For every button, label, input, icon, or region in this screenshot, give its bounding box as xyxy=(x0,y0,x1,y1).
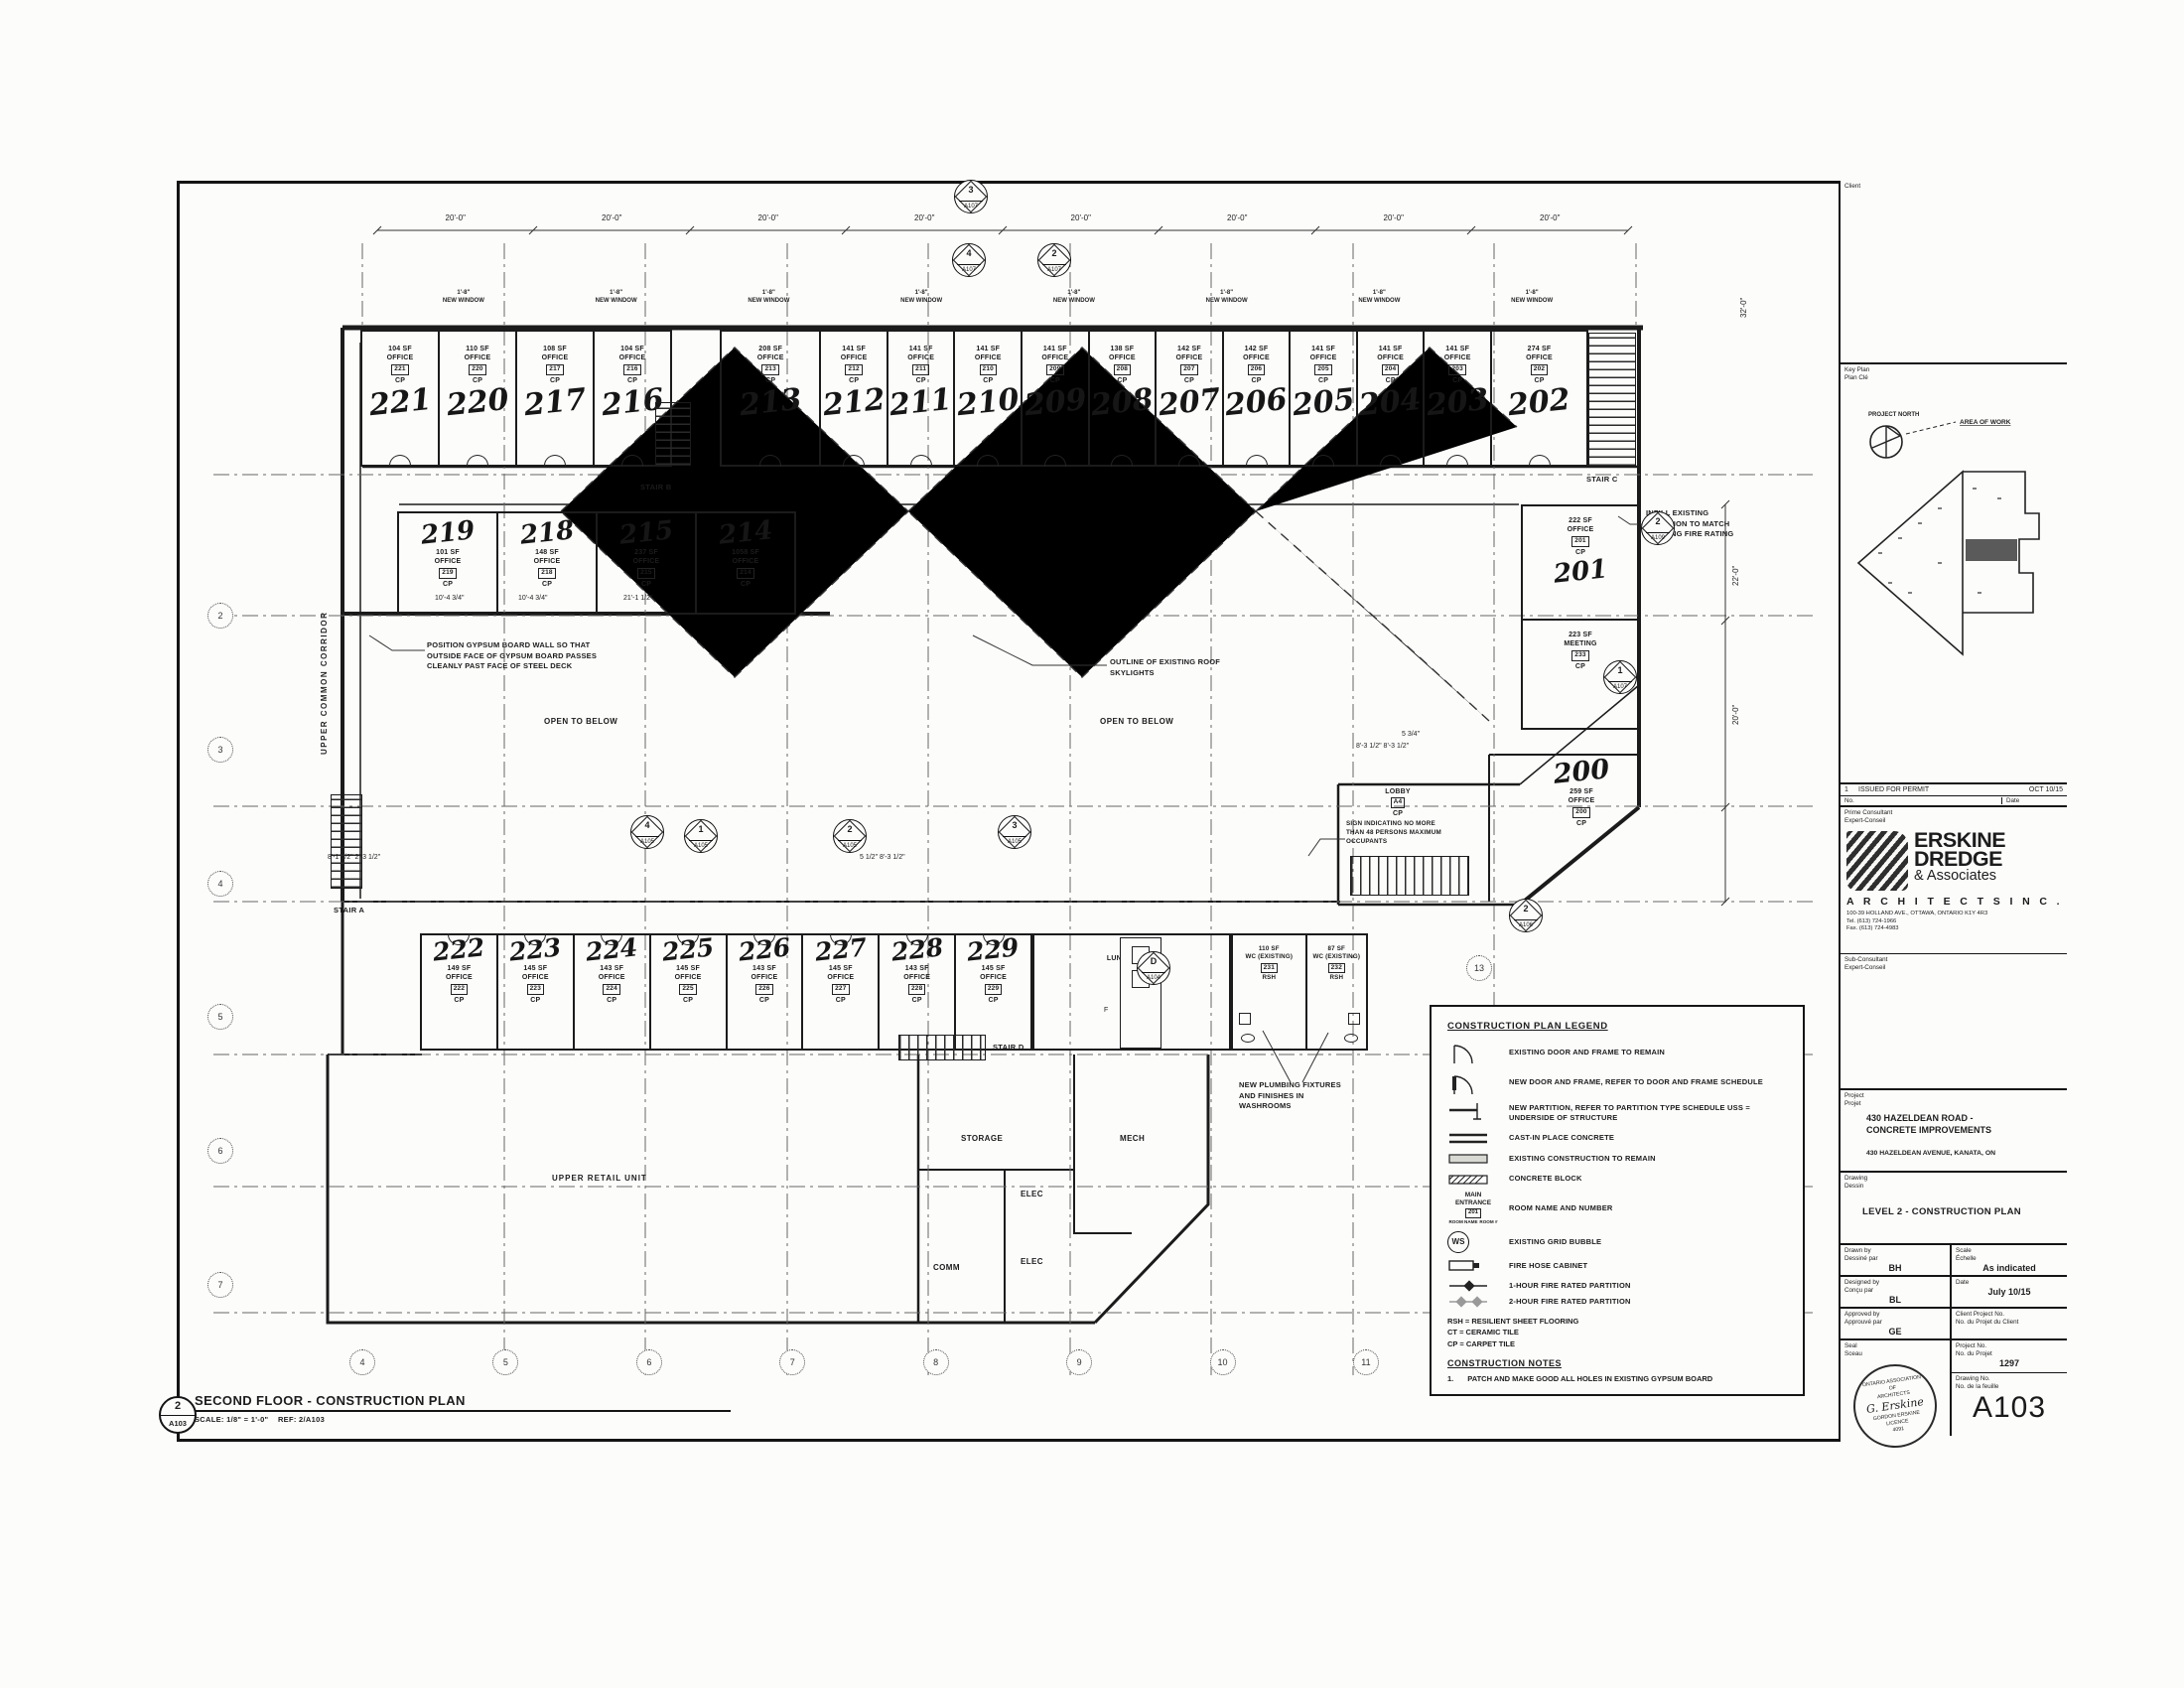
plumbing-note: NEW PLUMBING FIXTURES AND FINISHES IN WA… xyxy=(1239,1080,1356,1112)
office-room: 228 143 SF OFFICE 228 CP xyxy=(878,933,956,1051)
room-area: 108 SF xyxy=(542,345,569,353)
drawing-title-box: Drawing Dessin LEVEL 2 - CONSTRUCTION PL… xyxy=(1841,1173,2067,1245)
occupancy-sign-note: SIGN INDICATING NO MORE THAN 48 PERSONS … xyxy=(1346,820,1453,846)
room-tag: 220 xyxy=(469,364,485,375)
room-tag: A4 xyxy=(1391,797,1406,808)
room-number-handwritten: 202 xyxy=(1507,382,1572,423)
right-wing-rooms: 222 SF OFFICE 201 CP 201 223 SF MEETING … xyxy=(1521,504,1640,732)
room-finish: CP xyxy=(633,580,660,589)
room-stack: 237 SF OFFICE 215 CP xyxy=(633,548,660,589)
room-area: 141 SF xyxy=(907,345,934,353)
legend-item: 1-HOUR FIRE RATED PARTITION xyxy=(1447,1280,1789,1292)
room-stack: 145 SF OFFICE 225 CP xyxy=(675,964,702,1005)
room-type: OFFICE xyxy=(732,557,759,566)
drawing-no-box: Drawing No.No. de la feuille A103 xyxy=(1952,1373,2067,1436)
room-number-handwritten: 204 xyxy=(1358,382,1424,423)
room-stack: 101 SF OFFICE 219 CP xyxy=(435,548,462,589)
room-tag: 214 xyxy=(737,568,753,579)
door-arc-icon xyxy=(1312,455,1334,467)
room-area: 148 SF xyxy=(534,548,561,557)
upper-retail-label: UPPER RETAIL UNIT xyxy=(552,1174,647,1183)
room-stack: 110 SF OFFICE 220 CP xyxy=(465,345,491,385)
room-stack: 141 SF OFFICE 211 CP xyxy=(907,345,934,385)
dim-label: 5 1/2" 8'-3 1/2" xyxy=(860,854,905,861)
grid-bubble: 6 xyxy=(636,1349,662,1375)
room-number-handwritten: 201 xyxy=(1552,554,1608,590)
office-room: 224 143 SF OFFICE 224 CP xyxy=(573,933,651,1051)
room-area: 222 SF xyxy=(1568,516,1594,525)
room-tag: 212 xyxy=(845,364,862,375)
room-area: 145 SF xyxy=(522,964,549,973)
firm-logo: ERSKINE DREDGE & Associates xyxy=(1841,825,2067,893)
legend-item: NEW DOOR AND FRAME, REFER TO DOOR AND FR… xyxy=(1447,1070,1789,1096)
new-window-label: 1'-8"NEW WINDOW xyxy=(1151,290,1303,306)
stair-a-label: STAIR A xyxy=(334,906,364,914)
room-tag: 202 xyxy=(1531,364,1548,375)
revision-row: 1 ISSUED FOR PERMIT OCT 10/15 xyxy=(1841,784,2067,796)
dimension-label: 20'-0" xyxy=(377,213,534,222)
plumbing-fixture-icon xyxy=(1241,1034,1255,1043)
plan-title-marker: 2 A103 xyxy=(159,1396,197,1434)
prime-consultant-box: Prime Consultant Expert-Conseil ERSKINE … xyxy=(1841,807,2067,954)
room-number-handwritten: 203 xyxy=(1425,382,1490,423)
approved-by-value: GE xyxy=(1841,1327,1950,1336)
storage-label: STORAGE xyxy=(961,1134,1003,1143)
room-tag: 225 xyxy=(679,984,696,995)
room-finish: CP xyxy=(903,996,930,1005)
office-room: 226 143 SF OFFICE 226 CP xyxy=(726,933,804,1051)
room-type: OFFICE xyxy=(1310,353,1337,362)
stair-d xyxy=(898,1035,986,1060)
dimension-label: 20'-0" xyxy=(1160,213,1316,222)
room-number-handwritten: 217 xyxy=(522,382,588,423)
room-name-number-icon: MAIN ENTRANCE 201 ROOM NAME ROOM # xyxy=(1447,1192,1499,1226)
room-tag: 213 xyxy=(761,364,778,375)
grid-bubble: 11 xyxy=(1353,1349,1379,1375)
legend-item: NEW PARTITION, REFER TO PARTITION TYPE S… xyxy=(1447,1100,1789,1126)
detail-marker: 2A107 xyxy=(1037,243,1071,277)
stair-c xyxy=(1588,333,1636,467)
door-arc-icon xyxy=(1380,455,1402,467)
door-arc-icon xyxy=(1178,455,1200,467)
room-area: 101 SF xyxy=(435,548,462,557)
fire-hose-cabinet-icon xyxy=(1447,1257,1499,1275)
dimension-label: 20'-0" xyxy=(1472,213,1629,222)
room-finish: CP xyxy=(534,580,561,589)
door-arc-icon xyxy=(843,455,865,467)
dim-label: 22'-0" xyxy=(1731,566,1740,586)
dim-label: 8'-3 1/2" 8'-3 1/2" xyxy=(1356,743,1409,750)
room-number-handwritten: 211 xyxy=(888,382,954,423)
room-area: 145 SF xyxy=(675,964,702,973)
wc-room: 87 SF WC (EXISTING) 232 RSH xyxy=(1305,933,1368,1051)
room-stack: 142 SF OFFICE 206 CP xyxy=(1243,345,1270,385)
room-stack: 141 SF OFFICE 210 CP xyxy=(975,345,1002,385)
room-tag: 209 xyxy=(1046,364,1063,375)
two-hour-partition-icon xyxy=(1447,1296,1499,1308)
dim-label: 32'-0" xyxy=(1739,298,1748,318)
room-type: OFFICE xyxy=(1568,525,1594,534)
room-tag: 211 xyxy=(912,364,929,375)
room-name: WC (EXISTING) xyxy=(1245,953,1293,961)
office-room: 208 SF OFFICE 213 CP 213 xyxy=(720,330,821,467)
door-arc-icon xyxy=(977,455,999,467)
room-area: 143 SF xyxy=(903,964,930,973)
detail-marker: 4A105 xyxy=(630,815,664,849)
dim-label: 20'-0" xyxy=(1731,705,1740,725)
room-finish: CP xyxy=(1564,662,1596,671)
room-stack: 143 SF OFFICE 224 CP xyxy=(599,964,625,1005)
room-area: 143 SF xyxy=(751,964,778,973)
room-type: OFFICE xyxy=(1243,353,1270,362)
new-window-label: 1'-8"NEW WINDOW xyxy=(845,290,998,306)
room-number-handwritten: 210 xyxy=(955,382,1021,423)
room-finish: RSH xyxy=(1312,974,1360,982)
detail-marker: 1A105 xyxy=(684,819,718,853)
room-finish: CP xyxy=(1358,809,1437,818)
detail-marker: 1A107 xyxy=(1603,660,1637,694)
room-area: 141 SF xyxy=(1041,345,1068,353)
scale-value: As indicated xyxy=(1952,1263,2067,1273)
revision-header: No. Date xyxy=(1841,796,2067,807)
firm-name: A R C H I T E C T S I N C . xyxy=(1841,893,2067,910)
room-area: 104 SF xyxy=(619,345,646,353)
construction-note: 1. PATCH AND MAKE GOOD ALL HOLES IN EXIS… xyxy=(1447,1374,1789,1383)
room-number-handwritten: 207 xyxy=(1157,382,1222,423)
room-stack: 145 SF OFFICE 227 CP xyxy=(827,964,854,1005)
room-area: 141 SF xyxy=(1377,345,1404,353)
grid-bubble: 4 xyxy=(349,1349,375,1375)
room-stack: 141 SF OFFICE 212 CP xyxy=(841,345,868,385)
room-finish: CP xyxy=(599,996,625,1005)
grid-bubble: 7 xyxy=(779,1349,805,1375)
new-window-label: 1'-8"NEW WINDOW xyxy=(998,290,1151,306)
office-room: 104 SF OFFICE 221 CP 221 xyxy=(360,330,440,467)
room-number-handwritten: 214 xyxy=(717,515,773,551)
room-type: OFFICE xyxy=(435,557,462,566)
elec-label: ELEC xyxy=(1021,1257,1043,1266)
room-stack: 141 SF OFFICE 203 CP xyxy=(1444,345,1471,385)
office-room: 274 SF OFFICE 202 CP 202 xyxy=(1490,330,1588,467)
plumbing-fixture-icon xyxy=(1239,1013,1251,1025)
new-window-label: 1'-8"NEW WINDOW xyxy=(1303,290,1456,306)
corridor-label: UPPER COMMON CORRIDOR xyxy=(320,596,329,755)
legend-item: FIRE HOSE CABINET xyxy=(1447,1257,1789,1275)
room-finish: CP xyxy=(1527,819,1636,828)
room-finish: RSH xyxy=(1245,974,1293,982)
room-stack: 141 SF OFFICE 205 CP xyxy=(1310,345,1337,385)
room-name: WC (EXISTING) xyxy=(1312,953,1360,961)
room-tag: 223 xyxy=(527,984,544,995)
room-area: 145 SF xyxy=(827,964,854,973)
room-tag: 221 xyxy=(391,364,408,375)
legend-item: CAST-IN PLACE CONCRETE xyxy=(1447,1131,1789,1147)
room-number-handwritten: 213 xyxy=(738,382,803,423)
approved-clientno-row: Approved byApprouvé par GE Client Projec… xyxy=(1841,1309,2067,1340)
legend-item: EXISTING CONSTRUCTION TO REMAIN xyxy=(1447,1151,1789,1167)
grid-bubble: 13 xyxy=(1466,955,1492,981)
comm-label: COMM xyxy=(933,1263,960,1272)
door-arc-icon xyxy=(1246,455,1268,467)
lobby-stair xyxy=(1350,856,1469,896)
detail-marker: 2A105 xyxy=(833,819,867,853)
room-tag: 218 xyxy=(538,568,555,579)
grid-bubble: 5 xyxy=(492,1349,518,1375)
office-201: 222 SF OFFICE 201 CP 201 xyxy=(1521,504,1640,621)
room-tag: 229 xyxy=(985,984,1002,995)
new-door-icon xyxy=(1447,1070,1499,1096)
room-type: OFFICE xyxy=(827,973,854,982)
door-arc-icon xyxy=(1446,455,1468,467)
new-window-label: 1'-8"NEW WINDOW xyxy=(693,290,846,306)
room-number-handwritten: 206 xyxy=(1224,382,1290,423)
new-partition-icon xyxy=(1447,1100,1499,1126)
room-type: OFFICE xyxy=(387,353,414,362)
room-tag: 233 xyxy=(1571,650,1588,661)
window-label-row: 1'-8"NEW WINDOW1'-8"NEW WINDOW1'-8"NEW W… xyxy=(387,290,1608,306)
plan-title: SECOND FLOOR - CONSTRUCTION PLAN xyxy=(195,1393,731,1412)
office-room: 222 149 SF OFFICE 222 CP xyxy=(420,933,498,1051)
dimension-label: 20'-0" xyxy=(534,213,691,222)
room-type: OFFICE xyxy=(1176,353,1203,362)
bottom-office-row: 222 149 SF OFFICE 222 CP 223 145 SF OFFI… xyxy=(422,933,1032,1051)
room-number-handwritten: 212 xyxy=(821,382,887,423)
designed-date-row: Designed byConçu par BL Date July 10/15 xyxy=(1841,1277,2067,1309)
office-room: 141 SF OFFICE 209 CP 209 xyxy=(1021,330,1090,467)
detail-marker: 2A109 xyxy=(1641,511,1675,545)
door-arc-icon xyxy=(910,455,932,467)
room-type: OFFICE xyxy=(1527,796,1636,805)
construction-notes-title: CONSTRUCTION NOTES xyxy=(1447,1358,1789,1368)
room-type: OFFICE xyxy=(903,973,930,982)
room-area: 141 SF xyxy=(1444,345,1471,353)
room-tag: 219 xyxy=(439,568,456,579)
oaa-stamp: ONTARIO ASSOCIATION OF ARCHITECTS G. Ers… xyxy=(1848,1358,1943,1453)
drawing-title: LEVEL 2 - CONSTRUCTION PLAN xyxy=(1841,1191,2067,1235)
shaft-label: F xyxy=(1104,1007,1108,1014)
room-area: 110 SF xyxy=(1245,945,1293,953)
room-area: 141 SF xyxy=(841,345,868,353)
room-number-handwritten: 209 xyxy=(1023,382,1088,423)
door-arc-icon xyxy=(759,455,781,467)
elec-label: ELEC xyxy=(1021,1190,1043,1198)
drawn-scale-row: Drawn byDessiné par BH ScaleÉchelle As i… xyxy=(1841,1245,2067,1277)
grid-bubble: 7 xyxy=(207,1272,233,1298)
sub-consultant-box: Sub-Consultant Expert-Conseil xyxy=(1841,954,2067,1090)
room-tag: 200 xyxy=(1572,807,1589,818)
room-tag: 205 xyxy=(1314,364,1331,375)
skylight-note: OUTLINE OF EXISTING ROOF SKYLIGHTS xyxy=(1110,657,1239,678)
wc-room: 110 SF WC (EXISTING) 231 RSH xyxy=(1231,933,1307,1051)
stair-b xyxy=(655,402,691,466)
construction-plan-legend: CONSTRUCTION PLAN LEGEND EXISTING DOOR A… xyxy=(1430,1005,1805,1396)
door-arc-icon xyxy=(1529,455,1551,467)
grid-bubble: 8 xyxy=(923,1349,949,1375)
room-stack: 145 SF OFFICE 223 CP xyxy=(522,964,549,1005)
project-no-box: Project No.No. du Projet 1297 xyxy=(1952,1340,2067,1373)
room-tag: 224 xyxy=(603,984,619,995)
room-type: OFFICE xyxy=(446,973,473,982)
grid-bubbles-left: 234567 xyxy=(207,603,233,1298)
grid-bubble: 4 xyxy=(207,871,233,897)
room-area: 142 SF xyxy=(1243,345,1270,353)
room-area: 208 SF xyxy=(757,345,784,353)
plumbing-fixture-icon xyxy=(1344,1034,1358,1043)
grid-bubble: 10 xyxy=(1210,1349,1236,1375)
key-plan-drawing: PROJECT NORTH AREA OF WORK xyxy=(1841,384,2059,772)
room-type: OFFICE xyxy=(907,353,934,362)
office-room: 227 145 SF OFFICE 227 CP xyxy=(801,933,880,1051)
dimension-label: 20'-0" xyxy=(1003,213,1160,222)
top-dimension-row: 20'-0"20'-0"20'-0"20'-0"20'-0"20'-0"20'-… xyxy=(377,213,1628,222)
seal-number-row: SealSceau ONTARIO ASSOCIATION OF ARCHITE… xyxy=(1841,1340,2067,1436)
office-room: 138 SF OFFICE 208 CP 208 xyxy=(1088,330,1158,467)
room-type: OFFICE xyxy=(522,973,549,982)
room-number-handwritten: 208 xyxy=(1089,382,1155,423)
plumbing-fixture-icon xyxy=(1348,1013,1360,1025)
room-area: 274 SF xyxy=(1526,345,1553,353)
room-stack: 149 SF OFFICE 222 CP xyxy=(446,964,473,1005)
room-stack: 143 SF OFFICE 226 CP xyxy=(751,964,778,1005)
room-type: OFFICE xyxy=(465,353,491,362)
grid-bubble: 2 xyxy=(207,603,233,629)
room-type: OFFICE xyxy=(1377,353,1404,362)
legend-item: EXISTING DOOR AND FRAME TO REMAIN xyxy=(1447,1040,1789,1065)
firm-address: 100-39 HOLLAND AVE., OTTAWA, ONTARIO K1Y… xyxy=(1841,910,2067,937)
office-room: 141 SF OFFICE 205 CP 205 xyxy=(1289,330,1358,467)
drawn-by-value: BH xyxy=(1841,1263,1950,1273)
room-area: 138 SF xyxy=(1109,345,1136,353)
detail-marker: 3A105 xyxy=(998,815,1031,849)
door-arc-icon xyxy=(1111,455,1133,467)
office-room: 108 SF OFFICE 217 CP 217 xyxy=(515,330,595,467)
room-stack: 142 SF OFFICE 207 CP xyxy=(1176,345,1203,385)
room-finish: CP xyxy=(435,580,462,589)
stair-d-label: STAIR D xyxy=(993,1043,1024,1052)
room-tag: 210 xyxy=(980,364,997,375)
new-window-label: 1'-8"NEW WINDOW xyxy=(387,290,540,306)
detail-marker: 3A107 xyxy=(954,180,988,213)
room-finish: CP xyxy=(522,996,549,1005)
dim-label: 8'-1 1/2" 2'-3 1/2" xyxy=(328,854,380,861)
lobby: LOBBY A4 CP xyxy=(1358,787,1437,819)
office-room: 223 145 SF OFFICE 223 CP xyxy=(496,933,575,1051)
top-office-row-left: 104 SF OFFICE 221 CP 221 110 SF OFFICE 2… xyxy=(362,330,672,467)
dimension-label: 20'-0" xyxy=(690,213,847,222)
new-window-label: 1'-8"NEW WINDOW xyxy=(1455,290,1608,306)
room-stack: 208 SF OFFICE 213 CP xyxy=(757,345,784,385)
concrete-block-icon xyxy=(1447,1172,1499,1188)
legend-item: MAIN ENTRANCE 201 ROOM NAME ROOM # ROOM … xyxy=(1447,1192,1789,1226)
room-stack: 108 SF OFFICE 217 CP xyxy=(542,345,569,385)
room-type: OFFICE xyxy=(619,353,646,362)
room-type: MEETING xyxy=(1564,639,1596,648)
room-stack: 141 SF OFFICE 209 CP xyxy=(1041,345,1068,385)
room-area: 149 SF xyxy=(446,964,473,973)
one-hour-partition-icon xyxy=(1447,1280,1499,1292)
grid-bubbles-bottom: 4567891011 xyxy=(349,1349,1379,1375)
office-room: 142 SF OFFICE 207 CP 207 xyxy=(1155,330,1224,467)
room-finish: CP xyxy=(827,996,854,1005)
scanned-drawing-sheet: 20'-0"20'-0"20'-0"20'-0"20'-0"20'-0"20'-… xyxy=(0,0,2184,1688)
office-room: 110 SF OFFICE 220 CP 220 xyxy=(438,330,517,467)
detail-marker: DA104 xyxy=(1137,951,1170,985)
office-room: 141 SF OFFICE 210 CP 210 xyxy=(953,330,1023,467)
room-tag: 203 xyxy=(1448,364,1465,375)
stair-a xyxy=(331,794,362,889)
room-tag: 207 xyxy=(1180,364,1197,375)
room-area: 145 SF xyxy=(980,964,1007,973)
stair-c-label: STAIR C xyxy=(1586,475,1618,484)
office-room: 141 SF OFFICE 212 CP 212 xyxy=(819,330,888,467)
room-tag: 206 xyxy=(1248,364,1265,375)
open-to-below-label: OPEN TO BELOW xyxy=(1100,717,1173,726)
door-arc-icon xyxy=(621,455,643,467)
key-plan-box: Key Plan Plan Clé PROJECT NORTH AREA OF … xyxy=(1841,364,2067,784)
room-tag: 228 xyxy=(908,984,925,995)
room-area: 223 SF xyxy=(1564,631,1596,639)
room-type: OFFICE xyxy=(1109,353,1136,362)
room-area: 142 SF xyxy=(1176,345,1203,353)
office-200: 200 259 SF OFFICE 200 CP xyxy=(1527,757,1636,828)
room-tag: 217 xyxy=(546,364,563,375)
plan-scale: SCALE: 1/8" = 1'-0" REF: 2/A103 xyxy=(195,1412,751,1424)
room-stack: 148 SF OFFICE 218 CP xyxy=(534,548,561,589)
grid-bubble-icon: WS xyxy=(1447,1231,1499,1253)
finish-abbreviations: RSH = RESILIENT SHEET FLOORING CT = CERA… xyxy=(1447,1316,1789,1349)
svg-text:PROJECT NORTH: PROJECT NORTH xyxy=(1868,412,1919,418)
new-window-label: 1'-8"NEW WINDOW xyxy=(540,290,693,306)
room-type: OFFICE xyxy=(534,557,561,566)
room-type: OFFICE xyxy=(542,353,569,362)
room-stack: 145 SF OFFICE 229 CP xyxy=(980,964,1007,1005)
logo-hatch-icon xyxy=(1846,831,1908,891)
room-number-handwritten: 215 xyxy=(617,515,674,551)
room-type: OFFICE xyxy=(675,973,702,982)
room-type: OFFICE xyxy=(980,973,1007,982)
office-room: 141 SF OFFICE 204 CP 204 xyxy=(1356,330,1426,467)
cast-in-place-icon xyxy=(1447,1131,1499,1147)
room-number-handwritten: 220 xyxy=(445,382,510,423)
room-area: 87 SF xyxy=(1312,945,1360,953)
room-number-handwritten: 221 xyxy=(367,382,433,423)
room-type: OFFICE xyxy=(975,353,1002,362)
project-name: 430 HAZELDEAN ROAD - xyxy=(1866,1112,2067,1124)
room-area: 104 SF xyxy=(387,345,414,353)
door-arc-icon xyxy=(389,455,411,467)
room-tag: 215 xyxy=(637,568,654,579)
room-finish: CP xyxy=(675,996,702,1005)
room-area: 141 SF xyxy=(975,345,1002,353)
existing-construction-icon xyxy=(1447,1151,1499,1167)
room-tag: 201 xyxy=(1571,536,1588,547)
office-room: 214 1058 SF OFFICE 214 CP xyxy=(695,511,796,615)
room-number-handwritten: 218 xyxy=(518,515,575,551)
room-name: LOBBY xyxy=(1358,787,1437,796)
room-type: OFFICE xyxy=(751,973,778,982)
dim-label: 5 3/4" xyxy=(1402,731,1420,738)
grid-bubble: 3 xyxy=(207,737,233,763)
title-block: Client Key Plan Plan Clé PROJECT NORTH A… xyxy=(1839,181,2067,1442)
room-tag: 226 xyxy=(755,984,772,995)
door-arc-icon xyxy=(1044,455,1066,467)
room-type: OFFICE xyxy=(599,973,625,982)
room-finish: CP xyxy=(751,996,778,1005)
designed-by-value: BL xyxy=(1841,1295,1950,1305)
door-arc-icon xyxy=(544,455,566,467)
dim-label: 10'-4 3/4" xyxy=(518,595,548,602)
room-type: OFFICE xyxy=(633,557,660,566)
